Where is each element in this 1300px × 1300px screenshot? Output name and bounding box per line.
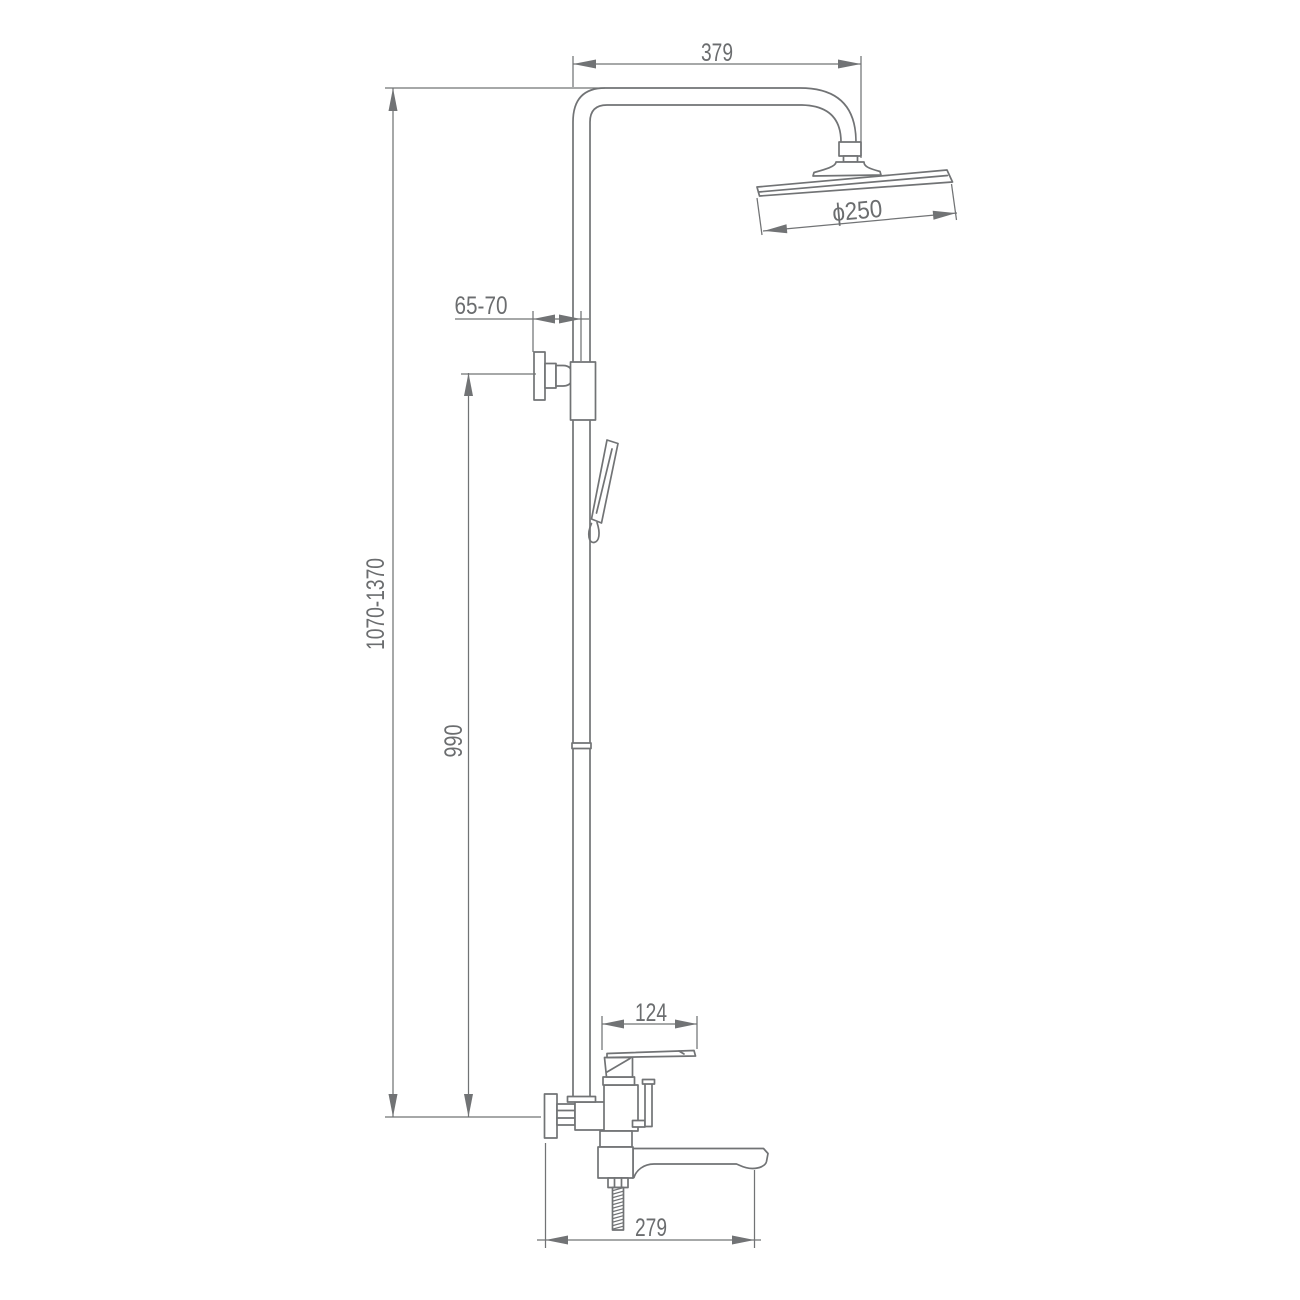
riser-pipe-and-arm bbox=[572, 88, 856, 1097]
mixer-assembly bbox=[545, 1051, 769, 1231]
label-riser-height: 990 bbox=[440, 725, 468, 758]
product-linework bbox=[534, 88, 953, 1230]
label-total-height: 1070-1370 bbox=[362, 558, 390, 650]
arrowhead-right bbox=[933, 211, 956, 220]
spout-connector bbox=[600, 1131, 632, 1147]
bracket-wall-plate bbox=[534, 352, 545, 400]
arrowhead-top bbox=[389, 88, 398, 111]
arrowhead-left bbox=[764, 224, 787, 233]
label-mixer-width: 124 bbox=[635, 999, 667, 1027]
ext-line-left bbox=[757, 198, 762, 235]
cartridge-ring bbox=[603, 1077, 635, 1085]
arrowhead-right bbox=[675, 1020, 697, 1029]
upper-wall-bracket bbox=[534, 352, 596, 420]
dimensions bbox=[385, 56, 957, 1248]
arrowhead-left bbox=[533, 315, 555, 324]
arrowhead-left bbox=[602, 1020, 624, 1029]
arrowhead-left bbox=[573, 60, 596, 69]
technical-drawing-page: 379 ϕ250 65-70 1070-1370 990 124 279 bbox=[0, 0, 1300, 1300]
ext-line-right bbox=[952, 184, 957, 220]
arrowhead-bottom bbox=[389, 1094, 398, 1117]
spout-base-block bbox=[598, 1147, 633, 1178]
arrowhead-right bbox=[838, 60, 861, 69]
diverter-cap bbox=[643, 1080, 655, 1085]
lower-wall-plate bbox=[545, 1094, 558, 1138]
label-wall-distance: 65-70 bbox=[455, 292, 508, 320]
riser-bottom-collar bbox=[568, 1097, 596, 1103]
pipe-joint-coupling bbox=[572, 743, 591, 749]
arrowhead-left bbox=[546, 1236, 569, 1245]
pipe-outer-line bbox=[573, 88, 856, 1097]
bracket-pipe-collar bbox=[571, 362, 596, 420]
shower-system-drawing: 379 ϕ250 65-70 1070-1370 990 124 279 bbox=[0, 0, 1300, 1300]
label-arm-reach: 379 bbox=[701, 39, 733, 67]
arrowhead-right bbox=[732, 1236, 755, 1245]
lower-hex-nut bbox=[557, 1104, 575, 1125]
hose-hex-nut bbox=[608, 1178, 628, 1188]
arrowhead-bottom bbox=[464, 1094, 473, 1117]
diverter-foot bbox=[633, 1121, 646, 1128]
label-head-diameter: ϕ250 bbox=[831, 195, 883, 227]
label-spout-reach: 279 bbox=[635, 1214, 667, 1242]
head-cone-joint bbox=[813, 162, 881, 176]
diverter-stem bbox=[645, 1084, 652, 1127]
dimension-total-height bbox=[385, 88, 605, 1117]
overhead-shower bbox=[757, 142, 953, 196]
arrowhead-right bbox=[559, 315, 581, 324]
arrowhead-top bbox=[464, 373, 473, 396]
arm-connector-nut bbox=[839, 142, 861, 156]
bracket-stem bbox=[545, 364, 556, 389]
bath-spout bbox=[633, 1149, 768, 1179]
hand-shower bbox=[589, 440, 618, 543]
dimension-riser-height bbox=[461, 373, 536, 1117]
pipe-inner-line bbox=[590, 105, 841, 1097]
mixer-handle-lever bbox=[607, 1051, 696, 1058]
arm-connector-ring bbox=[844, 156, 858, 162]
